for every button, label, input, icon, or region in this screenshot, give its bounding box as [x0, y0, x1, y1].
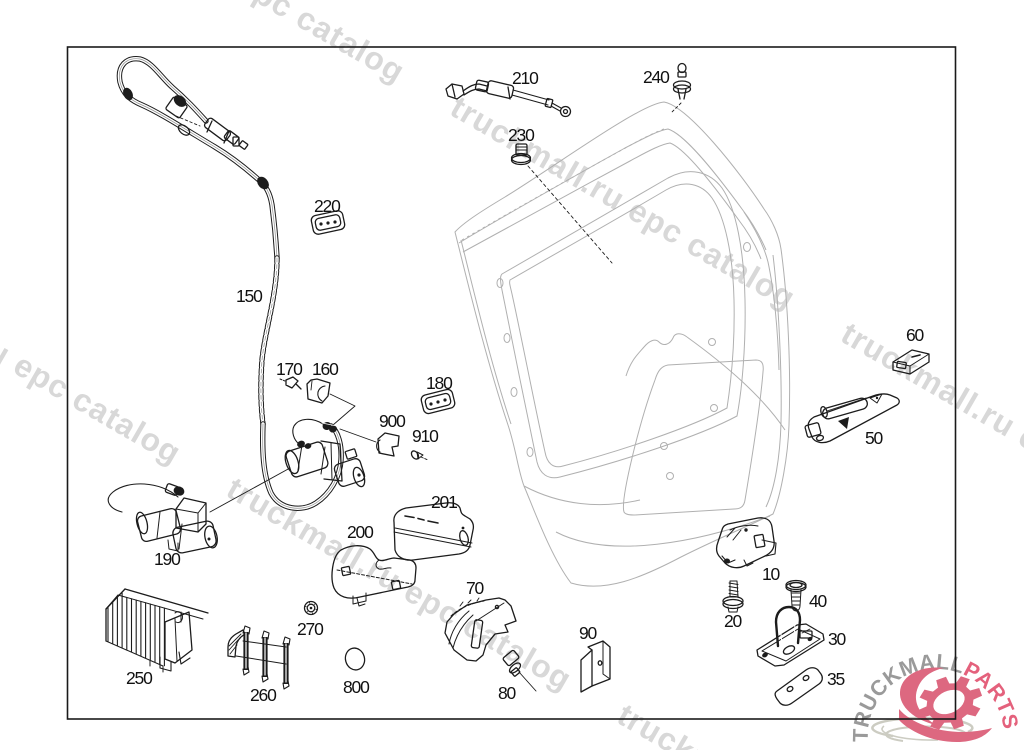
svg-text:800: 800 [343, 677, 370, 697]
svg-text:240: 240 [643, 67, 670, 87]
svg-text:20: 20 [724, 611, 743, 631]
svg-text:190: 190 [154, 549, 181, 569]
svg-text:900: 900 [379, 411, 406, 431]
svg-text:80: 80 [498, 683, 517, 703]
svg-text:200: 200 [347, 522, 374, 542]
svg-text:150: 150 [236, 286, 263, 306]
svg-text:210: 210 [512, 68, 539, 88]
svg-text:910: 910 [412, 426, 439, 446]
svg-text:30: 30 [828, 629, 847, 649]
svg-text:60: 60 [906, 325, 925, 345]
svg-text:10: 10 [762, 564, 781, 584]
svg-text:170: 170 [276, 359, 303, 379]
svg-text:90: 90 [579, 623, 598, 643]
svg-text:260: 260 [250, 685, 277, 705]
svg-text:160: 160 [312, 359, 339, 379]
svg-text:250: 250 [126, 668, 153, 688]
svg-text:180: 180 [426, 373, 453, 393]
svg-text:270: 270 [297, 619, 324, 639]
svg-text:50: 50 [865, 428, 884, 448]
svg-text:220: 220 [314, 196, 341, 216]
svg-text:201: 201 [431, 492, 457, 512]
svg-text:230: 230 [508, 125, 535, 145]
svg-text:35: 35 [827, 669, 845, 689]
svg-text:70: 70 [466, 578, 485, 598]
svg-text:40: 40 [809, 591, 828, 611]
